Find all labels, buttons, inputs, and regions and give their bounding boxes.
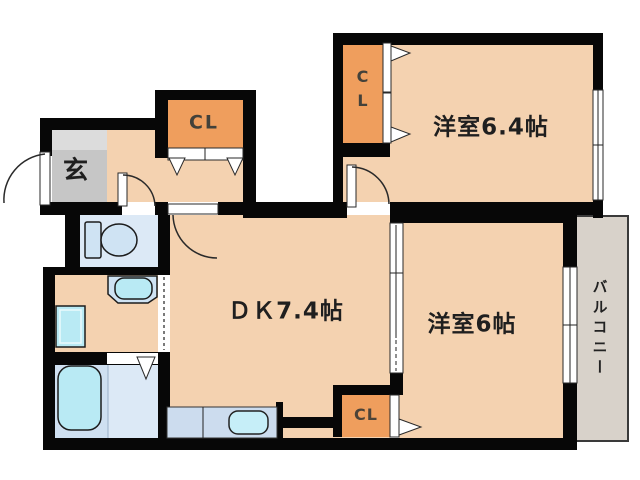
room-6-4-door-leaf <box>347 165 356 207</box>
bathroom-washing-area <box>108 365 158 438</box>
entrance-door <box>4 152 50 205</box>
room-6-4-window <box>593 90 603 200</box>
washing-machine-pan-icon <box>56 306 85 347</box>
vanity-sink-icon <box>108 276 157 303</box>
label-western-room-6: 洋室6帖 <box>427 314 516 337</box>
toilet-icon <box>85 222 137 258</box>
genkan-step <box>52 130 107 150</box>
label-western-room-6-4: 洋室6.4帖 <box>433 117 549 140</box>
floor-plan: 玄 CL CL 洋室6.4帖 ＤＫ7.4帖 洋室6帖 CL バルコニー <box>0 0 640 480</box>
kitchen-counter <box>167 407 277 438</box>
entrance-door-arc <box>4 154 45 203</box>
entrance-door-leaf <box>40 152 50 205</box>
label-genkan: 玄 <box>63 158 89 183</box>
kitchen-sink-icon <box>229 411 268 434</box>
bathtub-icon <box>58 366 101 430</box>
label-dk-closet: CL <box>354 407 378 423</box>
washroom-accordion-door <box>158 275 170 352</box>
floor-plan-drawing <box>0 0 640 480</box>
toilet-door-leaf <box>118 173 127 206</box>
label-room-6-4-closet: CL <box>354 67 370 115</box>
dk-door-leaf <box>168 204 218 214</box>
label-hall-closet: CL <box>189 114 219 133</box>
label-balcony: バルコニー <box>592 279 607 379</box>
label-dk: ＤＫ7.4帖 <box>228 301 344 324</box>
room-6-balcony-window <box>563 267 577 383</box>
dk-room6-sliding-door <box>390 223 403 373</box>
